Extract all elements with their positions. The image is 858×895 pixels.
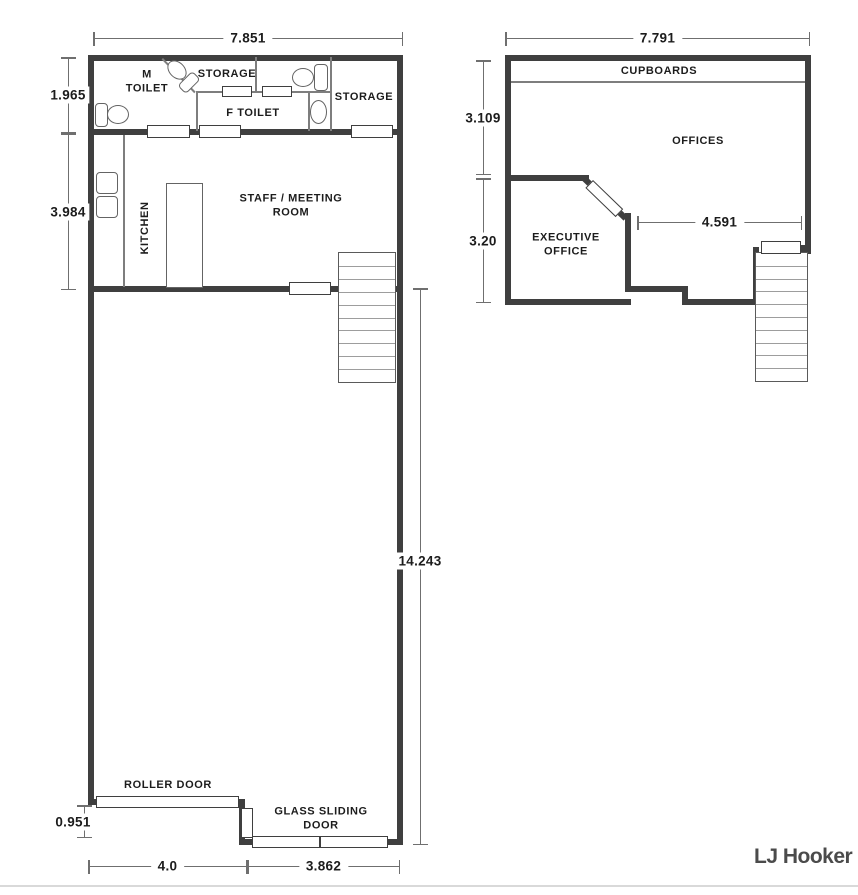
- stair-tread: [339, 292, 395, 293]
- stair-tread: [756, 368, 807, 369]
- wc-tank-icon: [314, 64, 328, 91]
- stair-tread: [756, 330, 807, 331]
- door-opening-stairs-upper: [761, 241, 801, 254]
- dimension-kitchen-depth: 3.984: [68, 133, 69, 290]
- dimension-rear-offset: 0.951: [84, 805, 85, 838]
- wc-bowl-icon: [292, 68, 314, 87]
- room-label-kitchen: KITCHEN: [138, 201, 152, 254]
- partition-mtoilet-right: [196, 91, 198, 131]
- door-exec-office: [585, 180, 623, 217]
- room-label-f-toilet: F TOILET: [226, 106, 279, 120]
- door-opening-mtoilet: [147, 125, 190, 138]
- stair-tread: [756, 343, 807, 344]
- upper-wall-exec-top: [505, 175, 589, 181]
- door-opening-staff-room: [289, 282, 331, 295]
- room-label-roller-door: ROLLER DOOR: [124, 778, 212, 792]
- room-label-glass-sliding-door: GLASS SLIDING DOOR: [265, 805, 377, 834]
- upper-wall-notch-top: [625, 286, 688, 292]
- stair-tread: [756, 355, 807, 356]
- stair-tread: [339, 279, 395, 280]
- stair-tread: [756, 266, 807, 267]
- toilet-bowl-icon: [107, 105, 129, 124]
- dimension-roller-door-width: 4.0: [88, 866, 247, 867]
- glass-sliding-door-panel-2: [320, 836, 388, 848]
- door-opening-storage-top: [222, 86, 252, 97]
- dimension-offices-width: 4.591: [637, 222, 802, 223]
- door-opening-wc-top: [262, 86, 292, 97]
- door-opening-storage-right: [351, 125, 393, 138]
- upper-wall-right: [805, 55, 811, 252]
- kitchen-appliance-icon-2: [96, 196, 118, 218]
- stair-tread: [339, 356, 395, 357]
- kitchen-appliance-icon-1: [96, 172, 118, 194]
- dimension-glass-door-width: 3.862: [247, 866, 400, 867]
- ground-wall-right: [397, 55, 403, 845]
- stair-tread: [339, 369, 395, 370]
- stair-tread: [339, 318, 395, 319]
- glass-sliding-door-panel-1: [252, 836, 320, 848]
- room-label-offices: OFFICES: [672, 134, 724, 148]
- upper-wall-bottom-left: [505, 299, 631, 305]
- cupboards-line: [511, 81, 805, 83]
- stairs-upper: [755, 252, 808, 382]
- roller-door-panel: [96, 796, 239, 808]
- partition-kitchen: [123, 135, 125, 287]
- dimension-ground-overall-width: 7.851: [93, 38, 403, 39]
- ground-wall-top: [88, 55, 403, 61]
- stair-tread: [339, 343, 395, 344]
- dimension-warehouse-length: 14.243: [420, 288, 421, 845]
- footer-divider: [0, 885, 858, 887]
- dimension-offices-depth: 3.109: [483, 60, 484, 175]
- room-label-storage-top: STORAGE: [198, 67, 256, 81]
- ground-wall-left: [88, 55, 94, 805]
- dimension-toilet-band-depth: 1.965: [68, 57, 69, 133]
- room-label-cupboards: CUPBOARDS: [621, 64, 697, 78]
- room-label-executive-office: EXECUTIVE OFFICE: [522, 231, 610, 260]
- stair-tread: [756, 291, 807, 292]
- stair-tread: [339, 266, 395, 267]
- stair-tread: [339, 305, 395, 306]
- upper-wall-top: [505, 55, 811, 61]
- kitchen-bench-icon: [166, 183, 203, 288]
- door-opening-ftoilet: [199, 125, 241, 138]
- room-label-m-toilet: M TOILET: [120, 68, 174, 97]
- lj-hooker-logo: LJ Hooker: [754, 845, 852, 869]
- stairs-ground: [338, 252, 396, 383]
- room-label-staff-meeting: STAFF / MEETING ROOM: [225, 192, 357, 221]
- dimension-executive-depth: 3.20: [483, 178, 484, 303]
- stair-tread: [756, 279, 807, 280]
- upper-wall-exec-right: [625, 213, 631, 292]
- partition-storage-right: [330, 57, 332, 131]
- stair-tread: [756, 304, 807, 305]
- stair-tread: [756, 317, 807, 318]
- stair-tread: [339, 330, 395, 331]
- wc-pan-icon: [310, 100, 327, 124]
- dimension-upper-overall-width: 7.791: [505, 38, 810, 39]
- floor-plan-canvas: M TOILET STORAGE F TOILET STORAGE KITCHE…: [0, 0, 858, 895]
- room-label-storage-right: STORAGE: [335, 90, 393, 104]
- upper-wall-bottom-right: [682, 299, 759, 305]
- door-jog-panel: [241, 808, 253, 838]
